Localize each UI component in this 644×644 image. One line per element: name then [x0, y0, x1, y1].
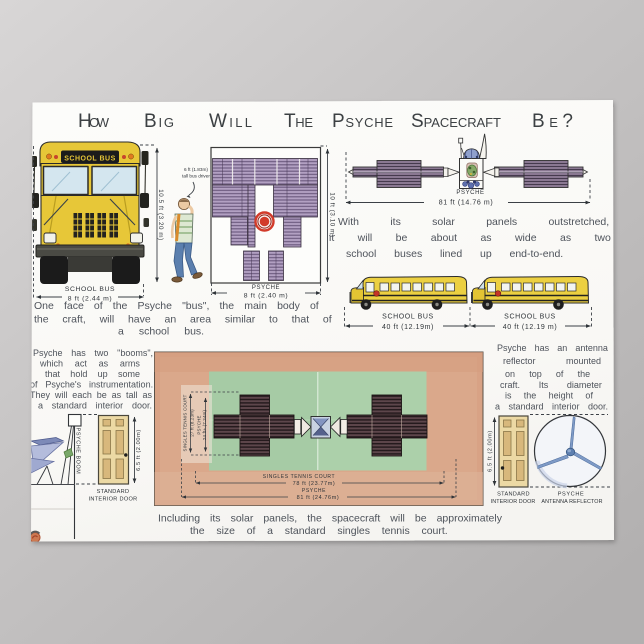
svg-text:6 ft (1.83m): 6 ft (1.83m) — [184, 167, 208, 172]
svg-text:Psyche has an antenna: Psyche has an antenna — [497, 343, 608, 353]
svg-text:reflector mounted: reflector mounted — [503, 356, 601, 366]
svg-text:Spacecraft: Spacecraft — [411, 111, 502, 132]
svg-text:27 ft (8.23m): 27 ft (8.23m) — [190, 409, 195, 437]
svg-text:SCHOOL BUS: SCHOOL BUS — [504, 314, 556, 321]
svg-text:school buses lined up end-to-e: school buses lined up end-to-end. — [346, 248, 563, 260]
svg-text:They will each be as tall as: They will each be as tall as — [30, 390, 152, 400]
svg-text:PSYCHE: PSYCHE — [302, 488, 326, 494]
svg-text:INTERIOR DOOR: INTERIOR DOOR — [491, 499, 536, 505]
svg-text:that hold up some: that hold up some — [45, 369, 140, 379]
svg-text:SINGLES TENNIS COURT: SINGLES TENNIS COURT — [263, 474, 335, 480]
svg-text:81 ft (14.76 m): 81 ft (14.76 m) — [439, 200, 494, 207]
svg-text:which act as arms: which act as arms — [39, 359, 140, 369]
svg-text:is the height of: is the height of — [505, 391, 593, 401]
svg-text:Including its solar panels, th: Including its solar panels, the spacecra… — [158, 513, 503, 525]
svg-text:Big: Big — [144, 111, 175, 132]
svg-text:STANDARD: STANDARD — [97, 489, 130, 495]
svg-text:ANTENNA REFLECTOR: ANTENNA REFLECTOR — [541, 499, 602, 505]
svg-text:Will: Will — [209, 111, 253, 132]
svg-text:With its solar panels outstret: With its solar panels outstretched, — [338, 216, 609, 228]
svg-text:a standard interior door.: a standard interior door. — [38, 401, 152, 411]
svg-text:PSYCHE: PSYCHE — [252, 285, 280, 291]
svg-text:6.5 ft (2.00m): 6.5 ft (2.00m) — [136, 429, 142, 471]
svg-text:The: The — [284, 111, 314, 132]
svg-text:SCHOOL BUS: SCHOOL BUS — [65, 286, 115, 293]
svg-text:Psyche: Psyche — [332, 111, 394, 132]
svg-text:PSYCHE: PSYCHE — [456, 190, 484, 196]
svg-text:the craft, will have an area s: the craft, will have an area similar to … — [34, 314, 332, 326]
svg-text:10 ft (3.10 m): 10 ft (3.10 m) — [329, 192, 336, 237]
svg-text:Psyche has two "booms",: Psyche has two "booms", — [33, 348, 153, 358]
svg-text:STANDARD: STANDARD — [497, 492, 530, 498]
svg-text:78 ft (23.77m): 78 ft (23.77m) — [293, 481, 336, 487]
svg-text:PSYCHE: PSYCHE — [558, 492, 585, 498]
svg-text:One face of the Psyche "bus",: One face of the Psyche "bus", the main b… — [34, 300, 319, 312]
svg-text:How: How — [78, 111, 110, 132]
svg-text:Be?: Be? — [532, 111, 574, 132]
svg-text:tall bus driver: tall bus driver — [182, 174, 210, 179]
svg-text:24 ft+ (7.34m): 24 ft+ (7.34m) — [202, 410, 207, 441]
svg-text:of Psyche's instrumentation.: of Psyche's instrumentation. — [30, 380, 153, 390]
svg-text:it will be about as wide as tw: it will be about as wide as two — [329, 232, 611, 244]
svg-text:SCHOOL BUS: SCHOOL BUS — [382, 314, 434, 321]
svg-text:40 ft (12.19 m): 40 ft (12.19 m) — [503, 324, 558, 331]
svg-text:a standard interior door.: a standard interior door. — [495, 402, 608, 412]
svg-text:INTERIOR DOOR: INTERIOR DOOR — [89, 497, 138, 503]
svg-text:40 ft (12.19m): 40 ft (12.19m) — [382, 324, 434, 331]
svg-text:SINGLES TENNIS COURT: SINGLES TENNIS COURT — [183, 394, 188, 451]
svg-text:a school bus.: a school bus. — [118, 326, 204, 338]
svg-text:6.5 ft (2.00m): 6.5 ft (2.00m) — [488, 430, 494, 472]
svg-text:81 ft (24.76m): 81 ft (24.76m) — [297, 495, 340, 501]
svg-text:on top of the: on top of the — [505, 369, 590, 379]
svg-text:craft. Its diameter: craft. Its diameter — [500, 380, 602, 390]
svg-text:the size of a standard singles: the size of a standard singles tennis co… — [190, 525, 448, 537]
svg-text:10.5 ft (3.20 m): 10.5 ft (3.20 m) — [157, 189, 164, 241]
svg-text:PSYCHE: PSYCHE — [197, 415, 202, 434]
svg-text:PSYCHE BOOM: PSYCHE BOOM — [75, 428, 81, 475]
svg-text:SCHOOL BUS: SCHOOL BUS — [64, 156, 116, 163]
svg-text:8 ft (2.40 m): 8 ft (2.40 m) — [244, 293, 288, 300]
